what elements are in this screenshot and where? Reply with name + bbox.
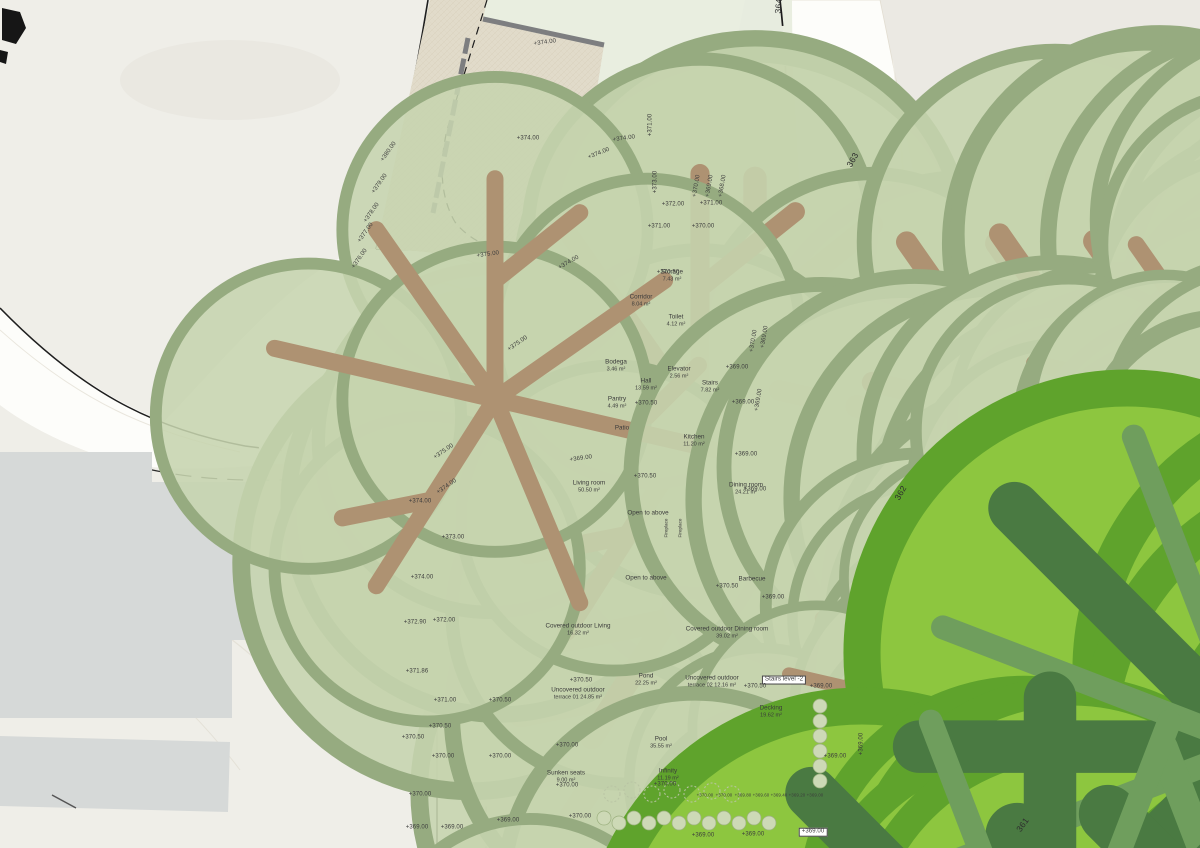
shrub-icon xyxy=(672,816,686,830)
shrub-icon xyxy=(687,811,701,825)
site-plan: Storage7.43 m²Corridor8.04 m²Toilet4.12 … xyxy=(0,0,1200,848)
shrub-icon xyxy=(732,816,746,830)
shrub-icon xyxy=(813,774,827,788)
shrub-icon xyxy=(813,699,827,713)
shrub-icon xyxy=(642,816,656,830)
shrub-icon xyxy=(813,744,827,758)
shrub-icon xyxy=(612,816,626,830)
shrub-icon xyxy=(597,811,611,825)
site-plan-drawing xyxy=(0,0,1200,848)
shrub-icon xyxy=(657,811,671,825)
shrub-icon xyxy=(627,811,641,825)
shrub-icon xyxy=(747,811,761,825)
shrub-icon xyxy=(813,714,827,728)
shrub-icon xyxy=(762,816,776,830)
shrub-icon xyxy=(717,811,731,825)
shrub-icon xyxy=(702,816,716,830)
shrub-icon xyxy=(813,729,827,743)
shrub-icon xyxy=(813,759,827,773)
